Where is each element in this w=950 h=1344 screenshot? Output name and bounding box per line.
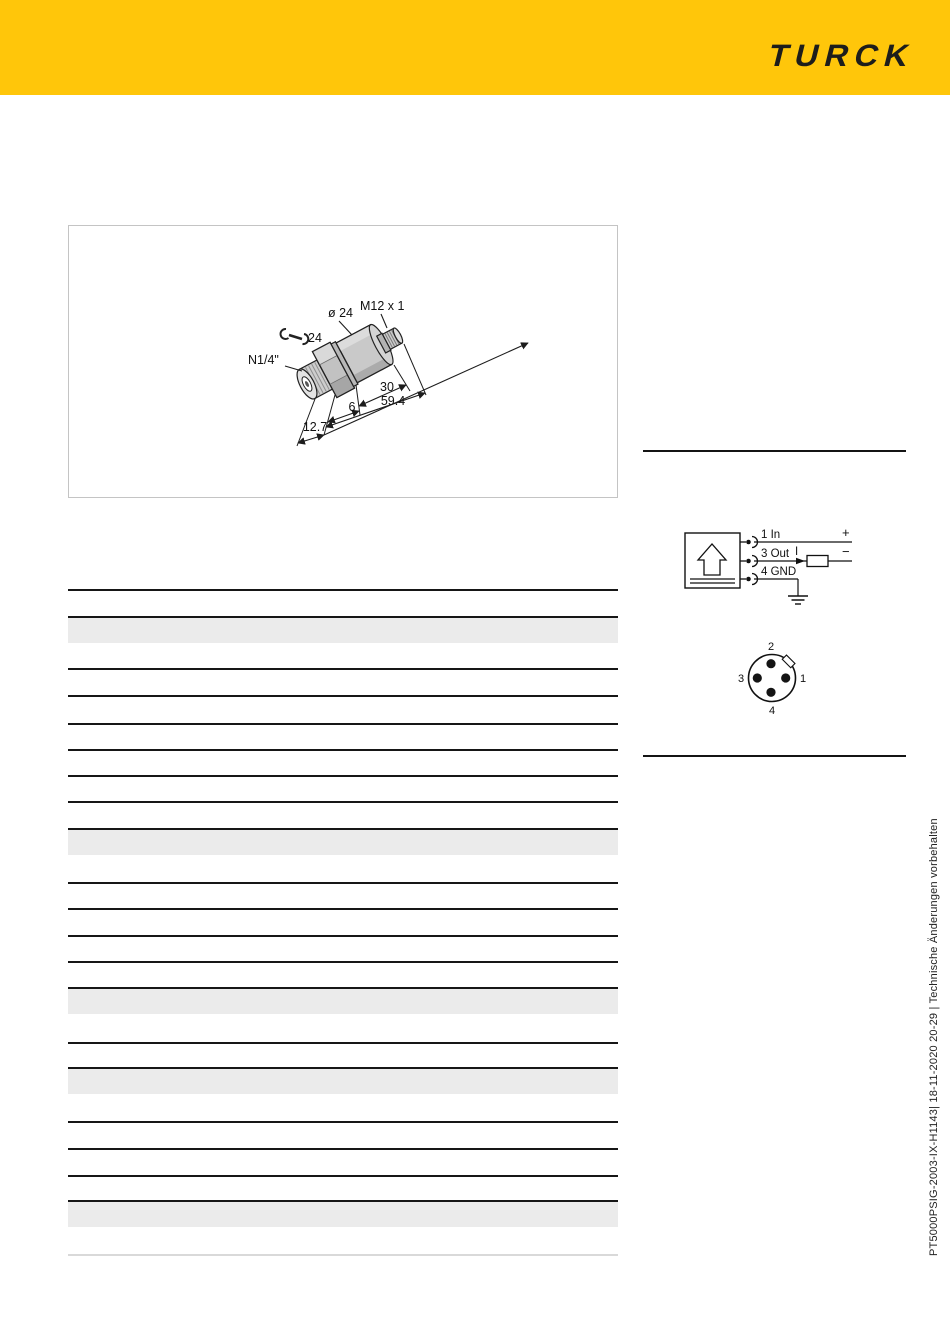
- table-rule: [68, 723, 618, 725]
- table-row-band: [68, 1202, 618, 1227]
- table-rule: [68, 775, 618, 777]
- table-rule: [68, 882, 618, 884]
- table-rule: [68, 668, 618, 670]
- label-dim-12-7: 12.7: [303, 420, 327, 434]
- label-m12-thread: M12 x 1: [360, 299, 405, 313]
- connector-pinout-diagram: 2 3 1 4: [720, 635, 830, 735]
- table-rule: [68, 935, 618, 937]
- table-rule: [68, 1175, 618, 1177]
- wiring-plus-label: +: [842, 525, 850, 540]
- table-rule: [68, 961, 618, 963]
- turck-logo: TURCK: [764, 38, 918, 74]
- document-id-note: PT5000PSIG-2003-IX-H1143| 18-11-2020 20-…: [928, 818, 940, 1256]
- wiring-minus-label: −: [842, 544, 850, 559]
- wrench-icon: [281, 329, 309, 344]
- wiring-pin4-label: 4 GND: [761, 566, 796, 578]
- dimension-drawing-box: M12 x 1 ø 24 24 N1/4" 30 59.4 6 12.7: [68, 225, 618, 498]
- pinout-label-3: 3: [738, 673, 744, 685]
- table-rule: [68, 908, 618, 910]
- table-rule: [68, 801, 618, 803]
- label-dim-30: 30: [380, 380, 394, 394]
- pinout-label-4: 4: [769, 705, 775, 717]
- pinout-label-1: 1: [800, 673, 806, 685]
- wiring-pin1-label: 1 In: [761, 529, 780, 541]
- current-arrow-icon: [796, 558, 805, 564]
- table-rule-bottom: [68, 1254, 618, 1256]
- table-rule: [68, 749, 618, 751]
- table-row-band: [68, 830, 618, 855]
- dimension-drawing: M12 x 1 ø 24 24 N1/4" 30 59.4 6 12.7: [68, 225, 618, 498]
- label-wrench-size: 24: [308, 331, 322, 345]
- banner: TURCK: [0, 0, 950, 95]
- ground-icon: [788, 596, 808, 604]
- table-row-band: [68, 989, 618, 1014]
- table-row-band: [68, 1069, 618, 1094]
- table-rule: [68, 1121, 618, 1123]
- table-row-band: [68, 618, 618, 643]
- label-dim-6: 6: [349, 400, 356, 414]
- section-divider-bottom: [643, 755, 906, 757]
- pinout-label-2: 2: [768, 641, 774, 653]
- label-process-connection: N1/4": [248, 353, 279, 367]
- table-rule: [68, 695, 618, 697]
- wiring-diagram: 1 In 3 Out 4 GND I + −: [640, 525, 920, 617]
- table-rule: [68, 1042, 618, 1044]
- section-divider-top: [643, 450, 906, 452]
- wiring-current-label: I: [795, 546, 798, 558]
- resistor-icon: [807, 556, 828, 567]
- label-dim-59-4: 59.4: [381, 394, 405, 408]
- wiring-pin3-label: 3 Out: [761, 548, 790, 560]
- table-rule: [68, 1148, 618, 1150]
- table-rule: [68, 589, 618, 591]
- label-diameter: ø 24: [328, 306, 353, 320]
